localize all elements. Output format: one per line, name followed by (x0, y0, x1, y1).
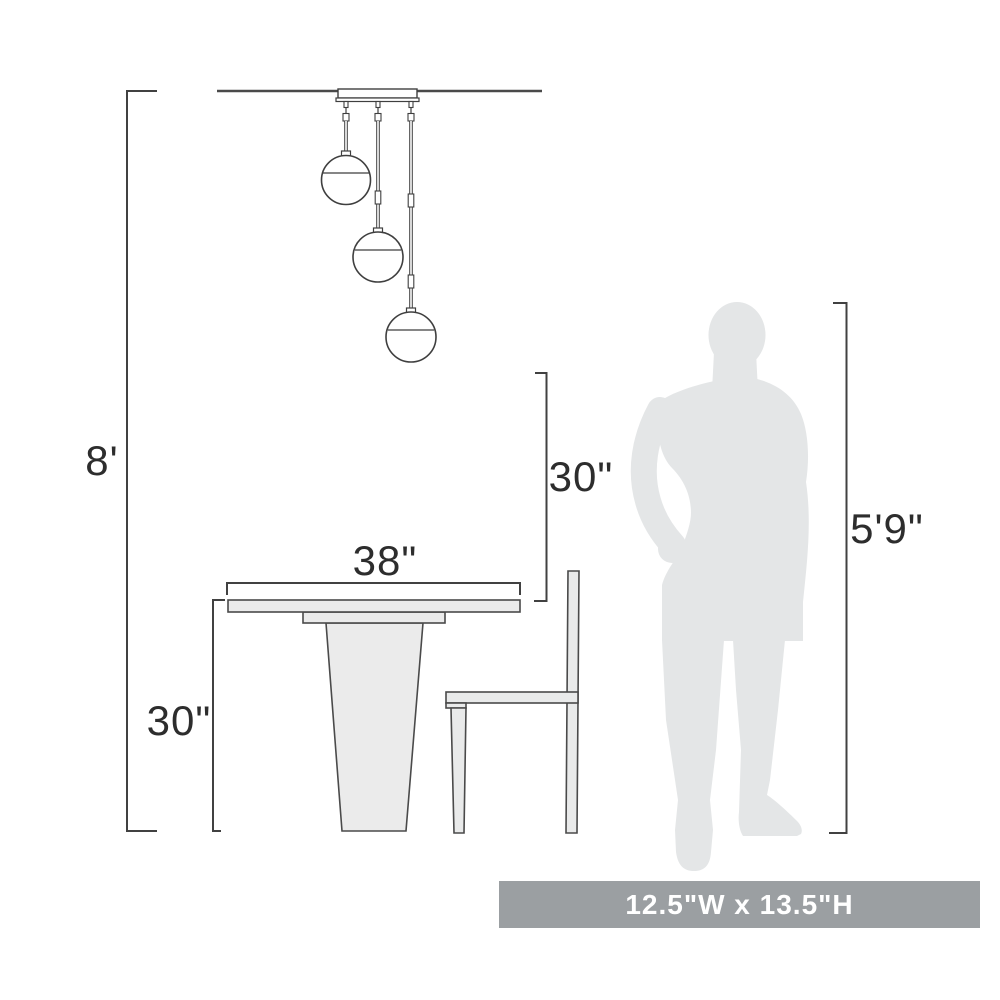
diagram-artwork (0, 0, 1000, 1000)
table-pedestal (326, 623, 423, 831)
pendant-stem-3 (407, 102, 416, 314)
pendant-globe-1 (322, 156, 371, 205)
canopy (338, 89, 417, 98)
person-height-label: 5'9" (850, 508, 924, 550)
pendant-globe-3 (386, 312, 436, 362)
pendant-stem-1 (342, 102, 351, 157)
person-left-leg (662, 640, 724, 871)
person-neck (712, 352, 758, 391)
product-dimension-diagram: 8' 30" 38" 30" 5'9" 12.5"W x 13.5"H (0, 0, 1000, 1000)
table-apron (303, 612, 445, 623)
person-right-leg (733, 640, 802, 836)
ceiling-height-label: 8' (85, 440, 118, 482)
dim-bracket-fixture-drop (534, 373, 547, 601)
shade-dimensions-badge: 12.5"W x 13.5"H (499, 881, 980, 928)
dining-table (228, 600, 520, 831)
chair-front-leg (451, 708, 466, 833)
table-top (228, 600, 520, 612)
person-hand (658, 535, 686, 563)
pendant-globe-2 (353, 232, 403, 282)
chair-seat (446, 692, 578, 703)
dim-bracket-person-height (829, 303, 847, 833)
shade-dimensions-text: 12.5"W x 13.5"H (625, 889, 853, 921)
table-width-label: 38" (353, 540, 418, 582)
pendant-light-fixture (322, 89, 437, 362)
dim-bracket-table-width (227, 583, 520, 595)
table-height-label: 30" (147, 700, 212, 742)
dim-bracket-table-height (213, 600, 225, 831)
person-silhouette (644, 302, 809, 871)
fixture-drop-label: 30" (549, 456, 614, 498)
pendant-stem-2 (374, 102, 383, 234)
person-torso (657, 378, 809, 641)
